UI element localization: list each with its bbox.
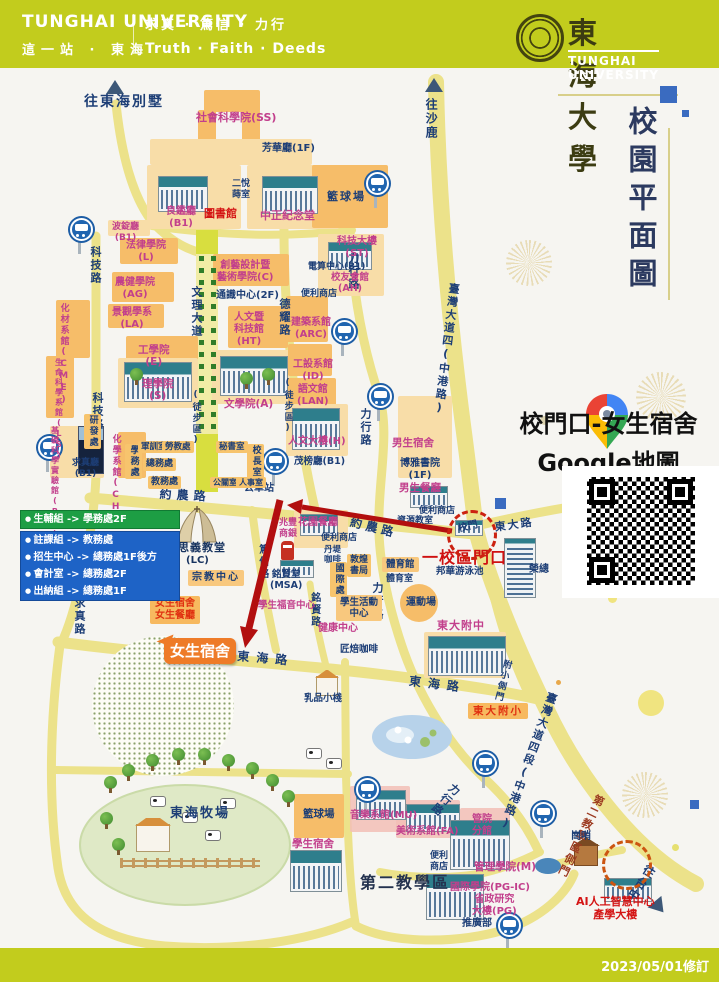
map-label: 勞教處 xyxy=(162,441,194,453)
bus-glyph xyxy=(474,752,497,775)
map-label: AI人工智慧中心 產學大樓 xyxy=(576,896,655,922)
map-label: (LC) xyxy=(186,555,209,567)
map-label: 籃球場 xyxy=(327,191,366,204)
map-label: 科技路 xyxy=(88,246,101,285)
map-label: 國際處 xyxy=(330,562,347,597)
square-decoration xyxy=(690,800,699,809)
qr-finder-icon xyxy=(667,479,693,505)
map-label: 建築系館 (ARC) xyxy=(291,317,331,341)
tree-icon xyxy=(100,812,113,825)
header-divider xyxy=(133,14,134,54)
tree-icon xyxy=(246,762,259,775)
map-label: 篤信路 xyxy=(256,544,268,580)
map-label: 管理學院(M) xyxy=(474,861,536,873)
tree-icon xyxy=(112,838,125,851)
dot-decoration xyxy=(556,680,561,685)
decor-line xyxy=(668,128,670,300)
legend-item: 會計室 -> 總務處2F xyxy=(21,566,179,583)
to-tunghai-villa: 往東海別墅 xyxy=(84,94,164,111)
bus-stop-icon xyxy=(333,320,355,360)
map-label: 人文暨 科技館 (HT) xyxy=(234,312,264,347)
map-label: 體育室 xyxy=(386,574,413,585)
sunburst-decoration xyxy=(622,772,668,818)
map-label: 運動場 xyxy=(406,597,436,609)
library: 圖書館 xyxy=(204,208,237,221)
bus-glyph xyxy=(333,320,356,343)
map-label: 良鑑廳 (B1) xyxy=(166,206,196,230)
map-label: (徒步區) xyxy=(190,390,201,447)
map-label: 求真路 xyxy=(72,597,85,636)
tree-icon xyxy=(266,774,279,787)
map-label: 博雅書院 (1F) xyxy=(400,458,440,482)
map-label: 東大附小 xyxy=(468,703,528,719)
bus-glyph xyxy=(70,218,93,241)
qr-finder-icon xyxy=(589,557,615,583)
revision-date: 2023/05/01修訂 xyxy=(601,956,709,975)
map-label: 學生宿舍 xyxy=(292,838,334,850)
pasture-fence xyxy=(120,858,260,868)
map-label: 工學院 (E) xyxy=(138,344,170,369)
map-label: 總務處 xyxy=(143,458,176,471)
map-label: 推廣部 xyxy=(462,918,492,930)
map-label: 學生活動 中心 xyxy=(336,595,382,621)
square-decoration xyxy=(660,86,677,103)
qr-code xyxy=(587,477,695,585)
bus-stop-icon xyxy=(474,752,496,792)
map-label: 文理大道 xyxy=(189,286,202,338)
map-label: 榮總 xyxy=(529,564,549,576)
map-label: 求真廳 (B1) xyxy=(72,458,99,479)
map-label: 臺灣大道四(中港路) xyxy=(431,282,460,417)
tree-icon xyxy=(172,748,185,761)
map-label: 音樂系館(MU) xyxy=(350,810,417,822)
map-label: 工設系館 (ID) xyxy=(293,359,333,383)
map-label: 東大路 xyxy=(494,517,534,535)
map-label: 人事室 xyxy=(236,477,266,488)
sunburst-decoration xyxy=(506,240,552,286)
square-decoration xyxy=(682,110,689,117)
square-decoration xyxy=(495,498,506,509)
map-label: 東海路 xyxy=(237,649,295,668)
map-label: 文學院(A) xyxy=(224,398,273,410)
building-icon xyxy=(220,356,288,396)
map-label: 美術系館(FA) xyxy=(396,826,459,838)
map-label: 人文大樓(H) xyxy=(288,436,346,448)
legend-item: 生輔組 -> 學務處2F xyxy=(21,511,179,528)
map-label: 科技大樓 (ST) xyxy=(337,236,377,260)
map-label: 銘賢堂 (MSA) xyxy=(270,569,302,591)
map-label: 省政研究 大樓(PG) xyxy=(472,894,517,918)
map-label: 便利商店 xyxy=(321,533,357,544)
bus-stop-icon xyxy=(532,802,554,842)
map-label: 創藝設計暨 藝術學院(C) xyxy=(217,260,273,284)
map-label: 男生餐廳 xyxy=(399,482,441,494)
map-label: 便利商店 xyxy=(301,289,337,300)
building-block xyxy=(204,90,260,112)
bus-glyph xyxy=(369,385,392,408)
side-gate-marker xyxy=(602,840,652,890)
tree-icon xyxy=(122,764,135,777)
map-label: 社會科學院(SS) xyxy=(196,112,276,125)
bus-stop-icon xyxy=(369,385,391,425)
legend-item: 招生中心 -> 總務處1F後方 xyxy=(21,549,179,566)
tree-icon xyxy=(282,790,295,803)
map-label: 芳華廳(1F) xyxy=(262,143,315,155)
map-label: 學生福音中心 xyxy=(258,600,315,611)
farm-house xyxy=(136,824,170,852)
cow-icon xyxy=(306,748,322,759)
cow-icon xyxy=(205,830,221,841)
legend-item: 註課組 -> 教務處 xyxy=(21,532,179,549)
tree-icon xyxy=(198,748,211,761)
map-label: 德耀路 xyxy=(277,298,290,337)
affiliated-high-school xyxy=(428,636,506,676)
motto: 求真 · 篤信 · 力行 Truth · Faith · Deeds xyxy=(145,14,326,57)
map-label: 花園餐廳 xyxy=(298,517,338,529)
map-label: 國際學院(PG-IC) xyxy=(450,882,530,894)
map-label: 邦華游泳池 xyxy=(436,566,484,577)
bus-stop-icon xyxy=(366,172,388,212)
map-label: 資源教室 xyxy=(397,516,433,527)
map-label: 法律學院 (L) xyxy=(126,240,166,264)
tree-icon xyxy=(146,754,159,767)
map-label: 二悅 蒔室 xyxy=(232,179,250,200)
map-label: 語文館 (LAN) xyxy=(297,384,329,408)
tree-icon xyxy=(262,368,275,381)
dot-decoration xyxy=(638,690,664,716)
arrow-up-icon xyxy=(106,80,124,94)
map-label: 校長室 xyxy=(247,444,264,479)
womens-dorm-callout: 女生宿舍 xyxy=(164,638,236,664)
post-office-box xyxy=(281,541,294,560)
bus-glyph xyxy=(264,450,287,473)
legend-item: 出納組 -> 總務處1F xyxy=(21,583,179,600)
bus-glyph xyxy=(366,172,389,195)
legend-blue-box: 註課組 -> 教務處招生中心 -> 總務處1F後方會計室 -> 總務處2F出納組… xyxy=(20,531,180,601)
logo-name-en: TUNGHAI UNIVERSITY xyxy=(568,50,659,82)
header-band: TUNGHAI UNIVERSITY 這一站 · 東海 求真 · 篤信 · 力行… xyxy=(0,0,719,68)
map-label: 便利 商店 xyxy=(430,851,448,872)
map-label: 乳品小棧 xyxy=(304,693,342,704)
logo-name-zh: 東海大學 xyxy=(568,10,600,178)
map-label: 兆豐 商銀 xyxy=(279,518,297,539)
university-seal-icon xyxy=(516,14,564,62)
map-label: 農健學院 (AG) xyxy=(115,277,155,301)
map-label: 匠焙咖啡 xyxy=(340,644,378,655)
map-label: 敦煌 書局 xyxy=(347,554,371,577)
map-label: 研發處 xyxy=(84,414,101,449)
map-label: 崗哨 xyxy=(571,831,591,843)
bus-glyph xyxy=(356,778,379,801)
route-title-line1: 校門口-女生宿舍 xyxy=(498,404,719,439)
tree-icon xyxy=(222,754,235,767)
cow-icon xyxy=(150,796,166,807)
tree-icon xyxy=(240,372,253,385)
map-label: 茂榜廳(B1) xyxy=(294,456,345,467)
qr-panel xyxy=(562,466,719,598)
dot-decoration xyxy=(672,844,679,851)
map-label: 理學院 (S) xyxy=(142,378,174,403)
map-label: 中正紀念堂 xyxy=(260,210,315,223)
bus-glyph xyxy=(532,802,555,825)
map-label: 體育館 xyxy=(382,557,419,572)
second-teaching-area: 第二教學區 xyxy=(360,874,450,893)
legend-green-box: 生輔組 -> 學務處2F xyxy=(20,510,180,529)
map-label: (徒步區) xyxy=(282,378,293,435)
building-icon xyxy=(290,850,342,892)
main-gate-marker xyxy=(447,510,497,560)
map-label: 籃球場 xyxy=(303,808,335,820)
map-label: 約農路 xyxy=(159,487,211,504)
tree-icon xyxy=(104,776,117,789)
tunghai-pasture: 東海牧場 xyxy=(170,806,230,821)
to-shalu: 往沙鹿 xyxy=(424,98,438,140)
motto-en: Truth · Faith · Deeds xyxy=(145,41,326,57)
map-label: 教務處 xyxy=(148,476,181,489)
map-label: 力行路 xyxy=(358,408,371,447)
motto-zh: 求真 · 篤信 · 力行 xyxy=(145,14,326,33)
map-label: 秘書室 xyxy=(216,441,248,453)
cow-icon xyxy=(326,758,342,769)
page-title: 校園平面圖 xyxy=(620,106,662,296)
luce-chapel-icon xyxy=(174,506,218,546)
map-label: 管院 分館 xyxy=(472,814,492,838)
map-label: 景觀學系 (LA) xyxy=(112,307,152,331)
map-label: 宗教中心 xyxy=(188,570,244,586)
map-label: 男生宿舍 xyxy=(392,437,434,449)
map-label: 東大附中 xyxy=(437,620,485,633)
mall-tree-line xyxy=(211,256,216,432)
map-label: 健康中心 xyxy=(318,623,358,635)
map-label: 通識中心(2F) xyxy=(216,290,279,302)
arrow-up-icon xyxy=(425,78,443,92)
campus-map-page: 生輔組 -> 學務處2F 註課組 -> 教務處招生中心 -> 總務處1F後方會計… xyxy=(0,0,719,982)
qr-finder-icon xyxy=(589,479,615,505)
